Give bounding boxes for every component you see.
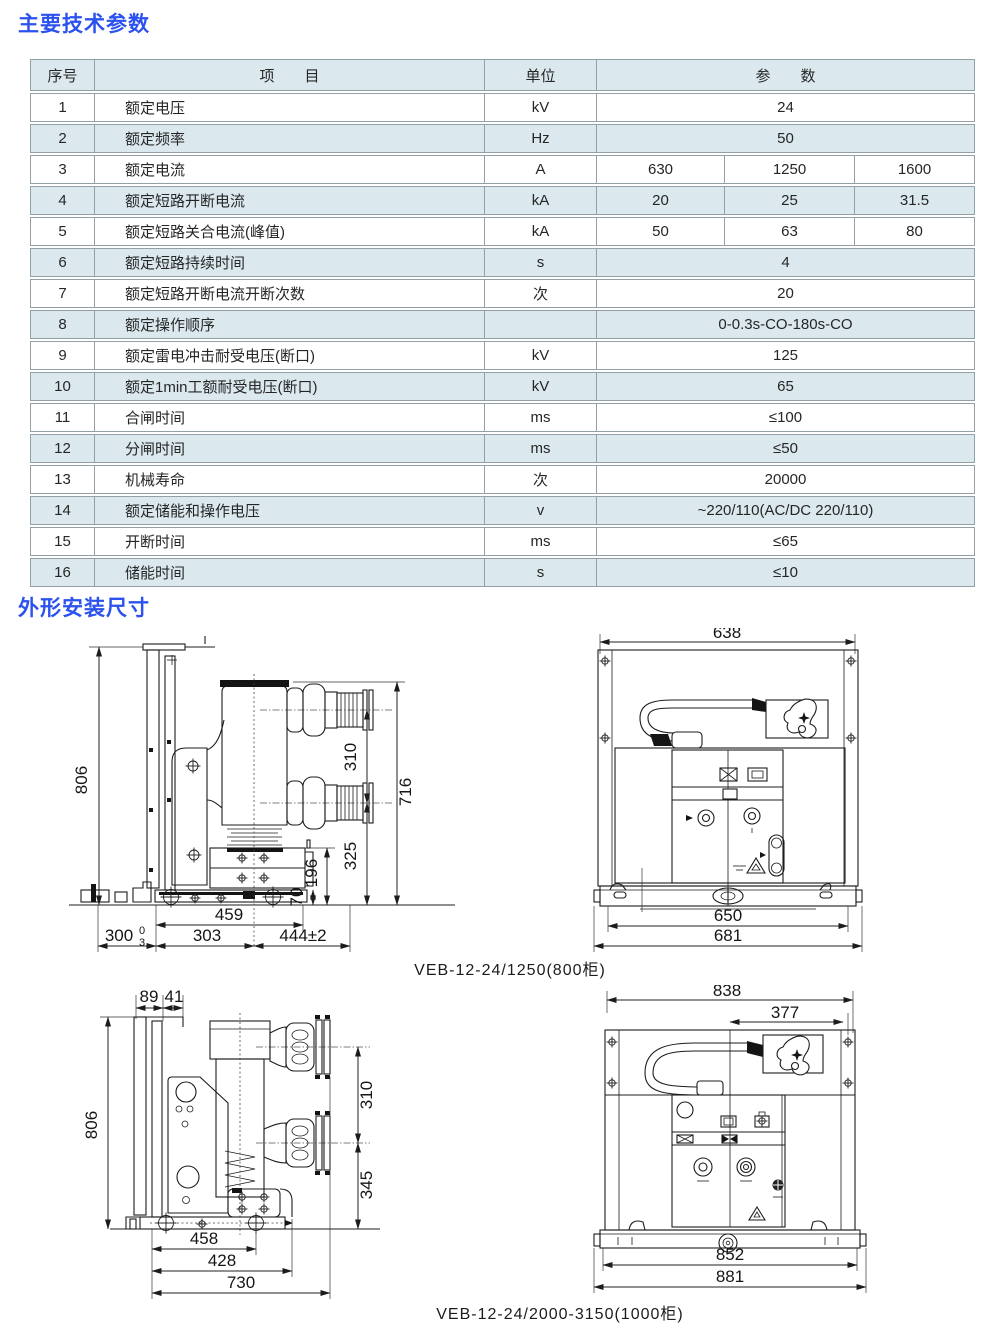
table-row: 4额定短路开断电流kA202531.5 [30, 186, 975, 215]
dim-tolerance-lower: 3 [139, 937, 145, 949]
table-cell: 额定短路开断电流 [95, 186, 485, 215]
table-row: 7额定短路开断电流开断次数次20 [30, 279, 975, 308]
dim-label: 303 [193, 926, 221, 945]
table-cell: ms [485, 434, 597, 463]
table-cell: 额定频率 [95, 124, 485, 153]
table-cell: 2 [30, 124, 95, 153]
figure2-side-drawing: 89 41 [70, 985, 490, 1300]
table-cell: 额定雷电冲击耐受电压(断口) [95, 341, 485, 370]
table-cell: 1600 [855, 155, 975, 184]
table-cell: 24 [597, 93, 975, 122]
table-cell: 25 [725, 186, 855, 215]
dim-label: 458 [190, 1229, 218, 1248]
table-row: 14额定储能和操作电压v~220/110(AC/DC 220/110) [30, 496, 975, 525]
dim-label: 806 [82, 1111, 101, 1139]
table-row: 9额定雷电冲击耐受电压(断口)kV125 [30, 341, 975, 370]
table-cell: 开断时间 [95, 527, 485, 556]
table-cell: 储能时间 [95, 558, 485, 587]
table-cell [485, 310, 597, 339]
table-cell: 20 [597, 279, 975, 308]
table-cell: kV [485, 341, 597, 370]
dim-label: 638 [713, 628, 741, 642]
section2-title: 外形安装尺寸 [18, 592, 150, 622]
table-row: 1额定电压kV24 [30, 93, 975, 122]
table-cell: 11 [30, 403, 95, 432]
table-cell: 14 [30, 496, 95, 525]
figure2-front-drawing: 838 377 [585, 985, 925, 1300]
table-cell: A [485, 155, 597, 184]
dim-label: 806 [72, 766, 91, 794]
dim-label: 852 [716, 1245, 744, 1264]
table-row: 11合闸时间ms≤100 [30, 403, 975, 432]
table-cell: ~220/110(AC/DC 220/110) [597, 496, 975, 525]
table-cell: 合闸时间 [95, 403, 485, 432]
table-cell: v [485, 496, 597, 525]
table-row: 13机械寿命次20000 [30, 465, 975, 494]
table-cell: 分闸时间 [95, 434, 485, 463]
table-cell: 125 [597, 341, 975, 370]
dim-label: 428 [208, 1251, 236, 1270]
figure2-caption: VEB-12-24/2000-3150(1000柜) [330, 1300, 790, 1324]
table-row: 2额定频率Hz50 [30, 124, 975, 153]
dim-label: 70 [287, 888, 306, 907]
table-cell: ms [485, 403, 597, 432]
table-cell: kV [485, 93, 597, 122]
table-header-row: 序号 项 目 单位 参 数 [30, 59, 975, 91]
table-cell: 13 [30, 465, 95, 494]
table-cell: 次 [485, 465, 597, 494]
table-cell: 16 [30, 558, 95, 587]
header-param: 参 数 [597, 59, 975, 91]
dim-label: 89 [140, 987, 159, 1006]
dim-label: 377 [771, 1003, 799, 1022]
header-unit: 单位 [485, 59, 597, 91]
table-cell: 63 [725, 217, 855, 246]
table-cell: Hz [485, 124, 597, 153]
table-cell: 机械寿命 [95, 465, 485, 494]
table-cell: 9 [30, 341, 95, 370]
table-cell: 65 [597, 372, 975, 401]
table-row: 15开断时间ms≤65 [30, 527, 975, 556]
table-cell: 7 [30, 279, 95, 308]
table-cell: ≤10 [597, 558, 975, 587]
table-row: 3额定电流A63012501600 [30, 155, 975, 184]
table-cell: 20 [597, 186, 725, 215]
table-cell: s [485, 248, 597, 277]
table-cell: 80 [855, 217, 975, 246]
table-row: 6额定短路持续时间s4 [30, 248, 975, 277]
table-cell: 额定储能和操作电压 [95, 496, 485, 525]
section1-title: 主要技术参数 [18, 8, 150, 38]
table-cell: 5 [30, 217, 95, 246]
dim-label: 345 [357, 1171, 376, 1199]
table-cell: 50 [597, 217, 725, 246]
dim-label: 838 [713, 985, 741, 1000]
dim-label: 41 [165, 987, 184, 1006]
table-cell: ≤50 [597, 434, 975, 463]
spec-table: 序号 项 目 单位 参 数 1额定电压kV242额定频率Hz503额定电流A63… [30, 57, 975, 589]
table-cell: 20000 [597, 465, 975, 494]
dim-label: 300 [105, 926, 133, 945]
figure1-front-drawing: 638 [580, 628, 900, 962]
dim-label: 881 [716, 1267, 744, 1286]
table-cell: kV [485, 372, 597, 401]
table-cell: 0-0.3s-CO-180s-CO [597, 310, 975, 339]
dim-label: 325 [341, 842, 360, 870]
header-item: 项 目 [95, 59, 485, 91]
table-cell: 12 [30, 434, 95, 463]
spec-table-body: 1额定电压kV242额定频率Hz503额定电流A630125016004额定短路… [30, 93, 975, 587]
table-cell: ≤65 [597, 527, 975, 556]
table-cell: 额定电压 [95, 93, 485, 122]
table-cell: 额定电流 [95, 155, 485, 184]
table-cell: 4 [597, 248, 975, 277]
dim-label: 716 [396, 778, 415, 806]
table-cell: 6 [30, 248, 95, 277]
table-cell: kA [485, 186, 597, 215]
table-row: 16储能时间s≤10 [30, 558, 975, 587]
dim-label: 650 [714, 906, 742, 925]
table-cell: s [485, 558, 597, 587]
table-cell: 额定短路开断电流开断次数 [95, 279, 485, 308]
table-cell: 31.5 [855, 186, 975, 215]
table-cell: 额定1min工额耐受电压(断口) [95, 372, 485, 401]
table-cell: 10 [30, 372, 95, 401]
table-cell: 3 [30, 155, 95, 184]
table-cell: 次 [485, 279, 597, 308]
table-row: 10额定1min工额耐受电压(断口)kV65 [30, 372, 975, 401]
dim-label: 681 [714, 926, 742, 945]
table-row: 8额定操作顺序0-0.3s-CO-180s-CO [30, 310, 975, 339]
header-no: 序号 [30, 59, 95, 91]
figure1-side-drawing: 806 716 310 325 196 70 459 300 0 3 303 4… [55, 630, 475, 962]
dim-label: 196 [302, 859, 321, 887]
table-cell: ≤100 [597, 403, 975, 432]
table-cell: ms [485, 527, 597, 556]
page: 主要技术参数 序号 项 目 单位 参 数 1额定电压kV242额定频率Hz503… [0, 0, 1000, 1334]
table-cell: kA [485, 217, 597, 246]
table-cell: 4 [30, 186, 95, 215]
table-row: 12分闸时间ms≤50 [30, 434, 975, 463]
dim-label: 730 [227, 1273, 255, 1292]
dim-label: 444±2 [279, 926, 326, 945]
table-cell: 1250 [725, 155, 855, 184]
table-cell: 15 [30, 527, 95, 556]
dim-label: 310 [357, 1081, 376, 1109]
table-cell: 8 [30, 310, 95, 339]
dim-label: 310 [341, 743, 360, 771]
figure1-caption: VEB-12-24/1250(800柜) [320, 956, 700, 980]
table-cell: 额定短路持续时间 [95, 248, 485, 277]
dim-tolerance-upper: 0 [139, 925, 145, 937]
table-cell: 额定短路关合电流(峰值) [95, 217, 485, 246]
table-cell: 1 [30, 93, 95, 122]
table-cell: 50 [597, 124, 975, 153]
table-cell: 额定操作顺序 [95, 310, 485, 339]
dim-label: 459 [215, 905, 243, 924]
table-cell: 630 [597, 155, 725, 184]
table-row: 5额定短路关合电流(峰值)kA506380 [30, 217, 975, 246]
